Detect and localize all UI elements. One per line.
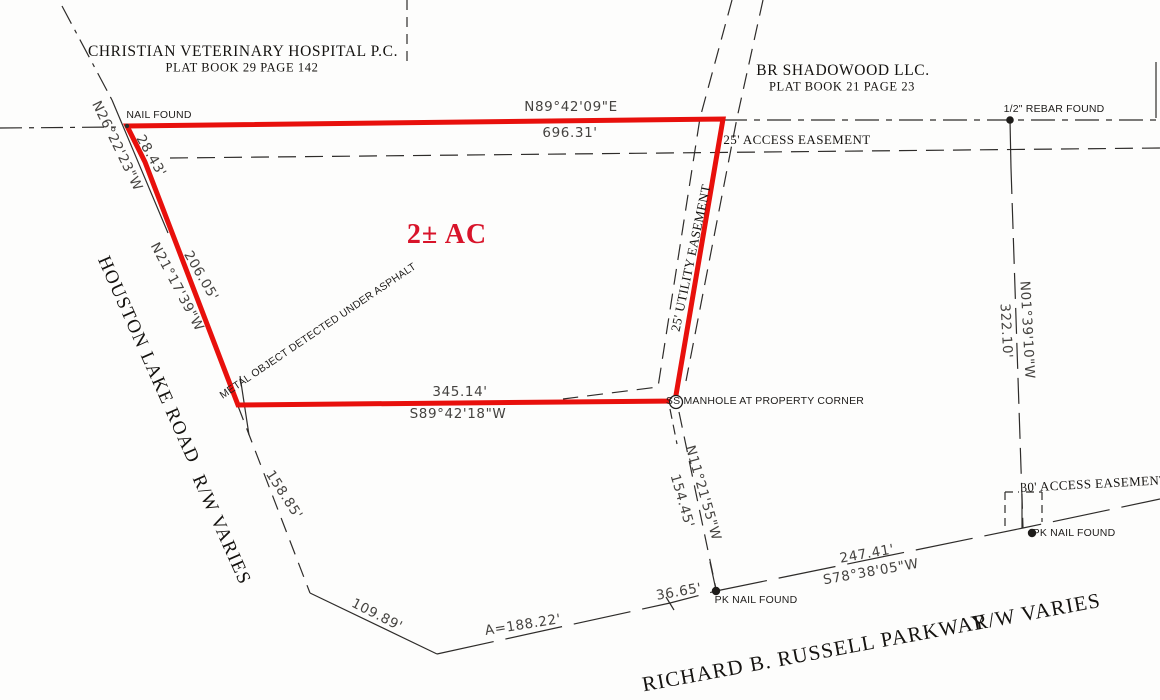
south-boundary-bearing: S89°42'18"W: [410, 406, 507, 422]
nail-found-label: NAIL FOUND: [126, 109, 191, 121]
north-boundary-distance: 696.31': [542, 125, 597, 141]
rebar-tie-solid-line: [1010, 120, 1011, 168]
nail-found-point: [125, 124, 129, 128]
access-easement-south-line: [170, 148, 1160, 158]
pk-nail-south-label: PK NAIL FOUND: [715, 594, 798, 606]
east-tie-distance: 322.10': [997, 303, 1016, 359]
north-boundary-bearing: N89°42'09"E: [524, 99, 617, 115]
parcel-area-label: 2± AC: [407, 219, 487, 251]
adjoiner-northeast-name: BR SHADOWOOD LLC.: [756, 62, 929, 80]
access-easement-25-label: 25' ACCESS EASEMENT: [723, 132, 870, 148]
ss-manhole-label: SS MANHOLE AT PROPERTY CORNER: [666, 395, 864, 407]
rebar-found-label: 1/2" REBAR FOUND: [1004, 103, 1105, 115]
south-boundary-distance: 345.14': [432, 384, 487, 400]
adjoiner-northeast-plat: PLAT BOOK 21 PAGE 23: [769, 80, 915, 95]
parkway-rw-line: [437, 499, 1160, 654]
pk-nail-east-label: PK NAIL FOUND: [1033, 527, 1116, 539]
parcel-boundary-red: [127, 119, 723, 405]
houston-rw-solid-line: [310, 593, 437, 654]
rebar-found-point: [1006, 116, 1014, 124]
manhole-stub-line: [670, 409, 677, 444]
pk-nail-stub-line: [710, 562, 716, 590]
adjoiner-north-name: CHRISTIAN VETERINARY HOSPITAL P.C.: [88, 43, 398, 61]
adjoiner-north-plat: PLAT BOOK 29 PAGE 142: [166, 61, 319, 76]
survey-plat: CHRISTIAN VETERINARY HOSPITAL P.C. PLAT …: [0, 0, 1160, 700]
